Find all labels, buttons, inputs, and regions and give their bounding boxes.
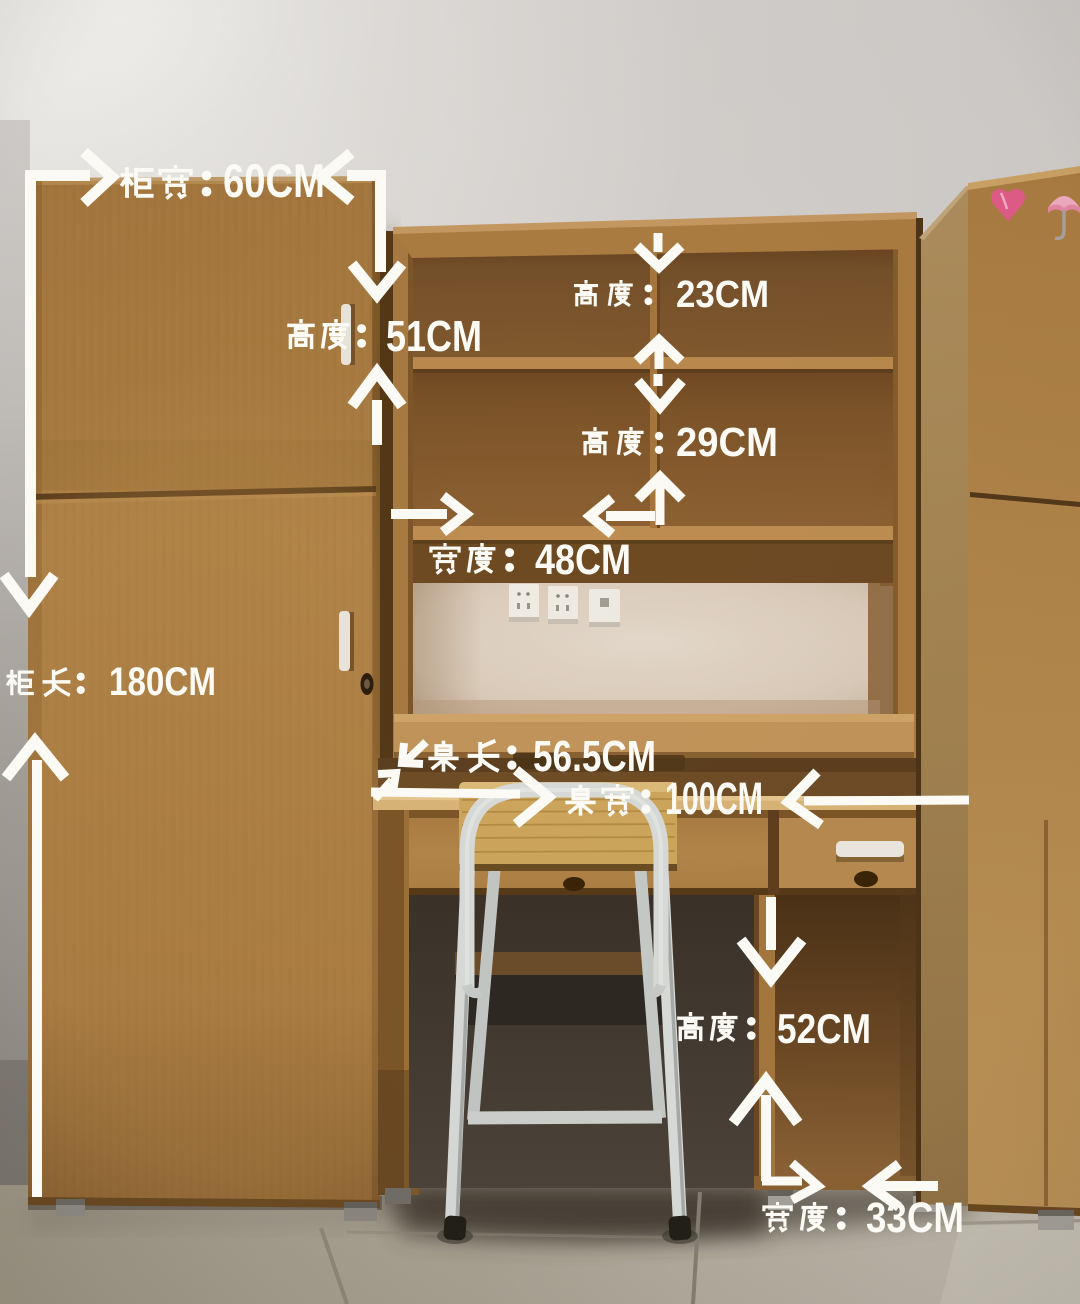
svg-text:29CM: 29CM [676, 419, 778, 465]
svg-text:33CM: 33CM [866, 1194, 964, 1242]
svg-text:23CM: 23CM [676, 274, 769, 316]
svg-text:60CM: 60CM [223, 154, 325, 207]
svg-text:180CM: 180CM [109, 660, 216, 704]
svg-text:100CM: 100CM [665, 773, 763, 824]
svg-text:52CM: 52CM [777, 1005, 871, 1052]
svg-text:56.5CM: 56.5CM [533, 732, 656, 781]
svg-text:48CM: 48CM [535, 536, 631, 584]
svg-text:51CM: 51CM [386, 312, 482, 361]
